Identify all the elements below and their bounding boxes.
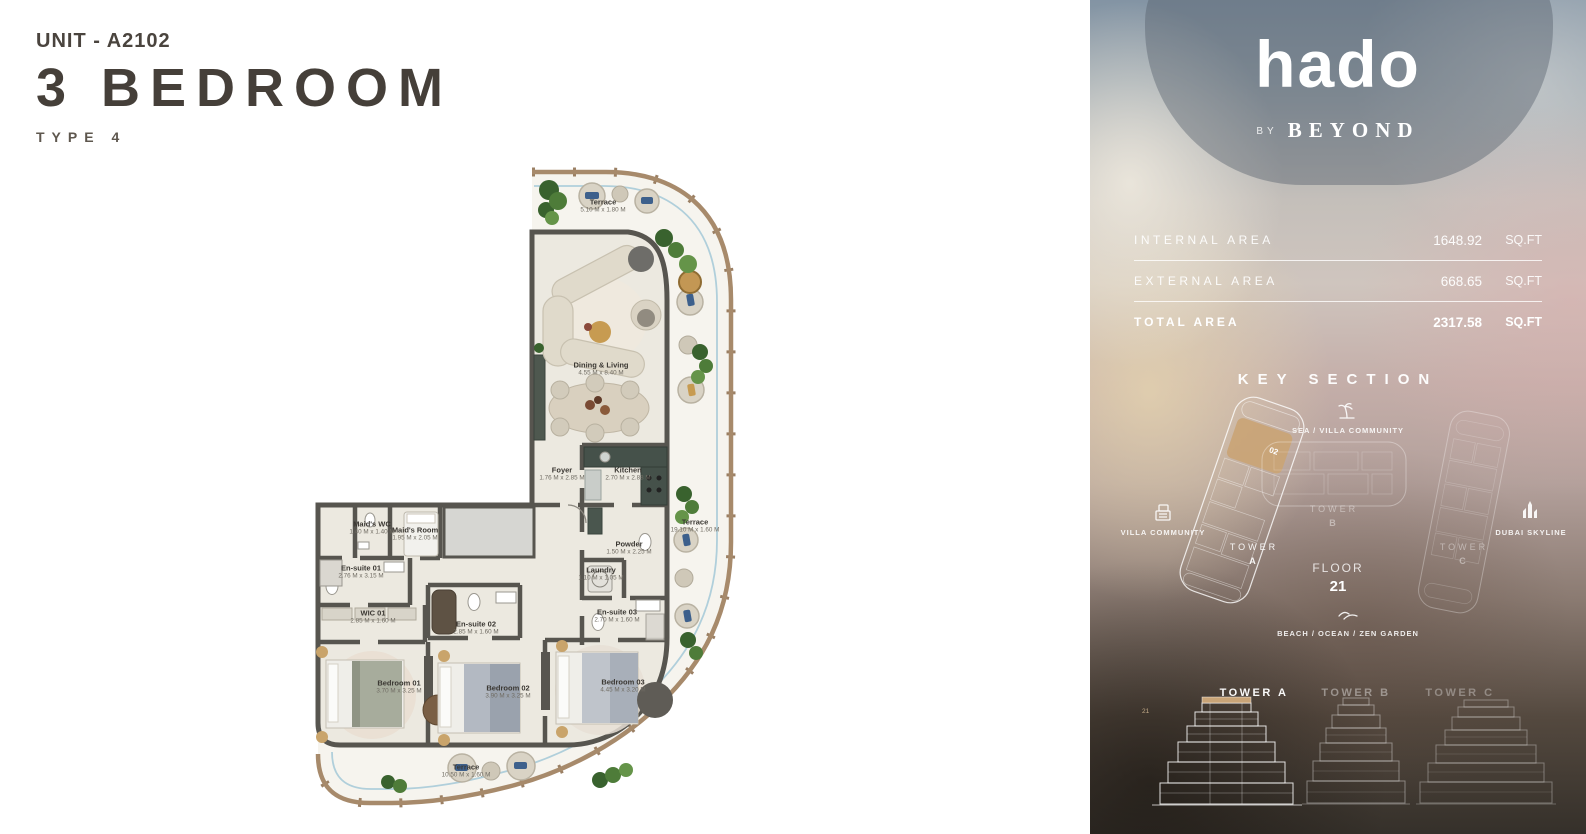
core-block xyxy=(444,507,534,557)
tower-a-elevation-label: TOWER A xyxy=(1202,687,1306,699)
room-label-terrace-top: Terrace5.10 M x 1.80 M xyxy=(580,197,625,214)
room-label-maids-room: Maid's Room1.95 M x 2.05 M xyxy=(392,525,438,542)
room-label-ensuite-01: En-suite 012.76 M x 3.15 M xyxy=(338,563,383,580)
room-label-ensuite-02: En-suite 022.85 M x 1.60 M xyxy=(453,619,498,636)
tower-b-elevation xyxy=(1302,698,1410,804)
floor-indicator: FLOOR 21 xyxy=(1090,561,1586,595)
tower-c-elevation-label: TOWER C xyxy=(1408,687,1512,699)
beach-ocean-label: BEACH / OCEAN / ZEN GARDEN xyxy=(1218,629,1478,638)
tower-c-elevation xyxy=(1416,700,1556,804)
room-label-powder: Powder1.50 M x 2.25 M xyxy=(606,539,651,556)
room-label-terrace-bottom: Terrace10.50 M x 1.60 M xyxy=(442,762,491,779)
brand-panel: hado BYBEYOND INTERNAL AREA 1648.92 SQ.F… xyxy=(1090,0,1586,834)
beach-bird-icon xyxy=(1337,606,1359,622)
room-label-foyer: Foyer1.76 M x 2.85 M xyxy=(539,465,584,482)
room-label-bedroom-02: Bedroom 023.90 M x 3.25 M xyxy=(485,683,530,700)
floor-label: FLOOR xyxy=(1090,561,1586,575)
room-label-terrace-right: Terrace19.10 M x 1.60 M xyxy=(671,517,720,534)
room-label-maids-wc: Maid's WC1.40 M x 1.40 M xyxy=(349,519,394,536)
tower-b-key-label: TOWER B xyxy=(1298,503,1370,530)
media-wall xyxy=(541,652,550,710)
key-section-plates: 02 xyxy=(1090,0,1586,834)
floor-value: 21 xyxy=(1090,578,1586,595)
floor-21-marker: 21 xyxy=(1142,708,1149,715)
room-label-laundry: Laundry1.10 M x 1.05 M xyxy=(578,565,623,582)
room-label-kitchen: Kitchen2.70 M x 2.88 M xyxy=(605,465,650,482)
tower-a-elevation xyxy=(1152,697,1302,805)
floor-plan-svg xyxy=(0,0,1090,834)
room-label-bedroom-03: Bedroom 034.45 M x 3.20 M xyxy=(600,677,645,694)
plan-area: UNIT - A2102 3 BEDROOM TYPE 4 xyxy=(0,0,1090,834)
room-label-bedroom-01: Bedroom 013.70 M x 3.25 M xyxy=(376,678,421,695)
room-label-dining-living: Dining & Living4.55 M x 8.40 M xyxy=(574,360,629,377)
room-label-wic-01: WIC 012.85 M x 1.60 M xyxy=(350,608,395,625)
room-label-ensuite-03: En-suite 032.70 M x 1.60 M xyxy=(594,607,639,624)
tower-b-elevation-label: TOWER B xyxy=(1306,687,1406,699)
floorplan-page: UNIT - A2102 3 BEDROOM TYPE 4 xyxy=(0,0,1586,834)
